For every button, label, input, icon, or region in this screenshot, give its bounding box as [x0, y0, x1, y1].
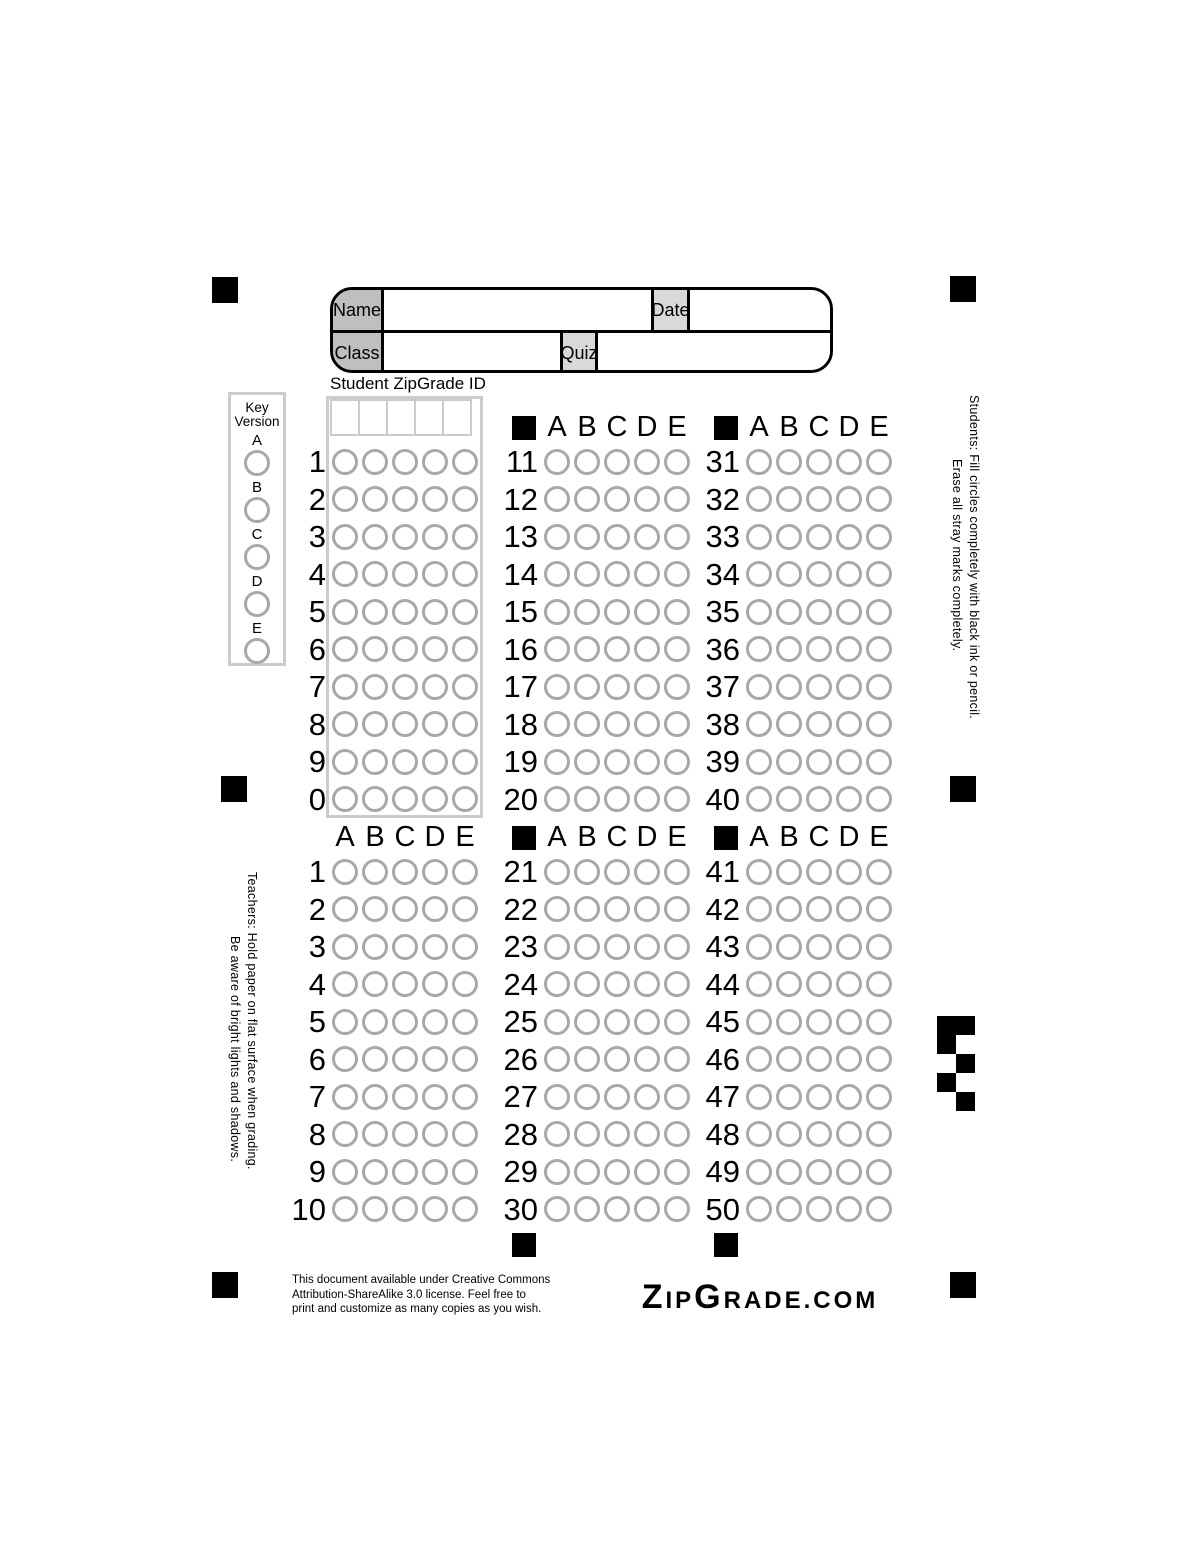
answer-bubble-q37-B[interactable]: [776, 674, 802, 700]
answer-bubble-q42-E[interactable]: [866, 896, 892, 922]
answer-bubble-q27-D[interactable]: [634, 1084, 660, 1110]
id-write-cell-5[interactable]: [442, 399, 472, 436]
answer-bubble-q13-D[interactable]: [634, 524, 660, 550]
answer-bubble-q50-E[interactable]: [866, 1196, 892, 1222]
answer-bubble-q5-D[interactable]: [422, 1009, 448, 1035]
answer-bubble-q26-B[interactable]: [574, 1046, 600, 1072]
answer-bubble-q31-C[interactable]: [806, 449, 832, 475]
answer-bubble-q6-E[interactable]: [452, 1046, 478, 1072]
answer-bubble-q40-E[interactable]: [866, 786, 892, 812]
answer-bubble-q50-A[interactable]: [746, 1196, 772, 1222]
answer-bubble-q36-C[interactable]: [806, 636, 832, 662]
id-bubble-digit1-col3[interactable]: [392, 449, 418, 475]
answer-bubble-q30-C[interactable]: [604, 1196, 630, 1222]
answer-bubble-q9-B[interactable]: [362, 1159, 388, 1185]
answer-bubble-q44-E[interactable]: [866, 971, 892, 997]
answer-bubble-q41-E[interactable]: [866, 859, 892, 885]
answer-bubble-q42-B[interactable]: [776, 896, 802, 922]
answer-bubble-q47-D[interactable]: [836, 1084, 862, 1110]
id-bubble-digit9-col3[interactable]: [392, 749, 418, 775]
answer-bubble-q47-A[interactable]: [746, 1084, 772, 1110]
id-bubble-digit9-col5[interactable]: [452, 749, 478, 775]
answer-bubble-q7-B[interactable]: [362, 1084, 388, 1110]
id-bubble-digit4-col1[interactable]: [332, 561, 358, 587]
answer-bubble-q36-A[interactable]: [746, 636, 772, 662]
answer-bubble-q33-D[interactable]: [836, 524, 862, 550]
answer-bubble-q45-E[interactable]: [866, 1009, 892, 1035]
answer-bubble-q20-A[interactable]: [544, 786, 570, 812]
answer-bubble-q40-C[interactable]: [806, 786, 832, 812]
answer-bubble-q44-A[interactable]: [746, 971, 772, 997]
answer-bubble-q35-C[interactable]: [806, 599, 832, 625]
answer-bubble-q18-D[interactable]: [634, 711, 660, 737]
id-bubble-digit5-col2[interactable]: [362, 599, 388, 625]
id-bubble-digit6-col5[interactable]: [452, 636, 478, 662]
id-bubble-digit7-col4[interactable]: [422, 674, 448, 700]
answer-bubble-q28-B[interactable]: [574, 1121, 600, 1147]
answer-bubble-q29-C[interactable]: [604, 1159, 630, 1185]
id-bubble-digit6-col4[interactable]: [422, 636, 448, 662]
answer-bubble-q7-A[interactable]: [332, 1084, 358, 1110]
answer-bubble-q3-B[interactable]: [362, 934, 388, 960]
answer-bubble-q25-D[interactable]: [634, 1009, 660, 1035]
answer-bubble-q23-A[interactable]: [544, 934, 570, 960]
answer-bubble-q11-D[interactable]: [634, 449, 660, 475]
answer-bubble-q1-B[interactable]: [362, 859, 388, 885]
answer-bubble-q13-C[interactable]: [604, 524, 630, 550]
answer-bubble-q38-C[interactable]: [806, 711, 832, 737]
answer-bubble-q16-B[interactable]: [574, 636, 600, 662]
id-bubble-digit2-col2[interactable]: [362, 486, 388, 512]
answer-bubble-q48-B[interactable]: [776, 1121, 802, 1147]
answer-bubble-q35-B[interactable]: [776, 599, 802, 625]
license-text: This document available under Creative C…: [292, 1273, 550, 1317]
id-bubble-digit9-col1[interactable]: [332, 749, 358, 775]
answer-bubble-q26-C[interactable]: [604, 1046, 630, 1072]
answer-bubble-q33-B[interactable]: [776, 524, 802, 550]
answer-bubble-q10-D[interactable]: [422, 1196, 448, 1222]
answer-bubble-q37-A[interactable]: [746, 674, 772, 700]
answer-bubble-q46-E[interactable]: [866, 1046, 892, 1072]
answer-bubble-q8-E[interactable]: [452, 1121, 478, 1147]
date-field[interactable]: [690, 290, 830, 330]
id-bubble-digit2-col1[interactable]: [332, 486, 358, 512]
answer-bubble-q31-D[interactable]: [836, 449, 862, 475]
answer-bubble-q32-B[interactable]: [776, 486, 802, 512]
quiz-field[interactable]: [598, 333, 830, 373]
answer-bubble-q21-D[interactable]: [634, 859, 660, 885]
id-write-cell-1[interactable]: [330, 399, 360, 436]
answer-bubble-q23-C[interactable]: [604, 934, 630, 960]
answer-bubble-q36-B[interactable]: [776, 636, 802, 662]
answer-bubble-q10-C[interactable]: [392, 1196, 418, 1222]
answer-bubble-q38-B[interactable]: [776, 711, 802, 737]
answer-bubble-q10-B[interactable]: [362, 1196, 388, 1222]
question-row-36: 36: [680, 631, 894, 669]
id-bubble-digit0-col4[interactable]: [422, 786, 448, 812]
answer-bubble-q31-B[interactable]: [776, 449, 802, 475]
answer-bubble-q4-B[interactable]: [362, 971, 388, 997]
answer-bubble-q46-C[interactable]: [806, 1046, 832, 1072]
id-bubble-digit8-col1[interactable]: [332, 711, 358, 737]
answer-bubble-q14-D[interactable]: [634, 561, 660, 587]
answer-bubble-q49-A[interactable]: [746, 1159, 772, 1185]
id-bubble-digit5-col4[interactable]: [422, 599, 448, 625]
answer-bubble-q26-A[interactable]: [544, 1046, 570, 1072]
answer-bubble-q2-D[interactable]: [422, 896, 448, 922]
answer-bubble-q5-C[interactable]: [392, 1009, 418, 1035]
answer-bubble-q22-A[interactable]: [544, 896, 570, 922]
answer-bubble-q25-B[interactable]: [574, 1009, 600, 1035]
answer-bubble-q4-C[interactable]: [392, 971, 418, 997]
answer-bubble-q47-E[interactable]: [866, 1084, 892, 1110]
answer-bubble-q10-A[interactable]: [332, 1196, 358, 1222]
answer-bubble-q19-C[interactable]: [604, 749, 630, 775]
answer-bubble-q38-D[interactable]: [836, 711, 862, 737]
answer-bubble-q20-B[interactable]: [574, 786, 600, 812]
answer-bubble-q14-B[interactable]: [574, 561, 600, 587]
answer-bubble-q45-A[interactable]: [746, 1009, 772, 1035]
answer-bubble-q47-C[interactable]: [806, 1084, 832, 1110]
answer-bubble-q45-D[interactable]: [836, 1009, 862, 1035]
answer-bubble-q37-D[interactable]: [836, 674, 862, 700]
answer-bubble-q8-B[interactable]: [362, 1121, 388, 1147]
answer-bubble-q30-B[interactable]: [574, 1196, 600, 1222]
id-bubble-digit0-col3[interactable]: [392, 786, 418, 812]
answer-bubble-q22-B[interactable]: [574, 896, 600, 922]
id-bubble-digit6-col2[interactable]: [362, 636, 388, 662]
answer-bubble-q12-A[interactable]: [544, 486, 570, 512]
answer-bubble-q32-D[interactable]: [836, 486, 862, 512]
answer-bubble-q42-D[interactable]: [836, 896, 862, 922]
answer-bubble-q48-C[interactable]: [806, 1121, 832, 1147]
id-write-cell-2[interactable]: [358, 399, 388, 436]
id-bubble-digit7-col1[interactable]: [332, 674, 358, 700]
answer-bubble-q49-C[interactable]: [806, 1159, 832, 1185]
answer-bubble-q17-B[interactable]: [574, 674, 600, 700]
id-bubble-digit8-col4[interactable]: [422, 711, 448, 737]
answer-bubble-q12-C[interactable]: [604, 486, 630, 512]
answer-bubble-q45-B[interactable]: [776, 1009, 802, 1035]
answer-bubble-q7-D[interactable]: [422, 1084, 448, 1110]
answer-bubble-q24-A[interactable]: [544, 971, 570, 997]
answer-bubble-q39-B[interactable]: [776, 749, 802, 775]
answer-bubble-q34-B[interactable]: [776, 561, 802, 587]
answer-bubble-q15-B[interactable]: [574, 599, 600, 625]
answer-bubble-q25-A[interactable]: [544, 1009, 570, 1035]
answer-bubble-q2-E[interactable]: [452, 896, 478, 922]
id-bubble-digit2-col4[interactable]: [422, 486, 448, 512]
answer-bubble-q40-B[interactable]: [776, 786, 802, 812]
answer-bubble-q43-D[interactable]: [836, 934, 862, 960]
id-bubble-digit6-col1[interactable]: [332, 636, 358, 662]
answer-bubble-q23-D[interactable]: [634, 934, 660, 960]
answer-bubble-q13-A[interactable]: [544, 524, 570, 550]
answer-bubble-q43-E[interactable]: [866, 934, 892, 960]
answer-bubble-q14-C[interactable]: [604, 561, 630, 587]
answer-bubble-q15-C[interactable]: [604, 599, 630, 625]
answer-bubble-q17-C[interactable]: [604, 674, 630, 700]
answer-bubble-q39-C[interactable]: [806, 749, 832, 775]
id-bubble-digit3-col1[interactable]: [332, 524, 358, 550]
answer-bubble-q20-C[interactable]: [604, 786, 630, 812]
id-bubble-digit4-col5[interactable]: [452, 561, 478, 587]
answer-bubble-q35-A[interactable]: [746, 599, 772, 625]
answer-bubble-q7-C[interactable]: [392, 1084, 418, 1110]
answer-bubble-q27-B[interactable]: [574, 1084, 600, 1110]
id-bubble-digit1-col1[interactable]: [332, 449, 358, 475]
id-bubble-digit5-col1[interactable]: [332, 599, 358, 625]
answer-bubble-q6-B[interactable]: [362, 1046, 388, 1072]
id-bubble-digit3-col3[interactable]: [392, 524, 418, 550]
id-bubble-digit1-col2[interactable]: [362, 449, 388, 475]
id-bubble-digit8-col3[interactable]: [392, 711, 418, 737]
answer-bubble-q29-A[interactable]: [544, 1159, 570, 1185]
answer-bubble-q16-C[interactable]: [604, 636, 630, 662]
answer-bubble-q46-B[interactable]: [776, 1046, 802, 1072]
id-bubble-digit2-col5[interactable]: [452, 486, 478, 512]
answer-bubble-q32-C[interactable]: [806, 486, 832, 512]
answer-bubble-q15-D[interactable]: [634, 599, 660, 625]
id-bubble-digit0-col2[interactable]: [362, 786, 388, 812]
answer-bubble-q28-A[interactable]: [544, 1121, 570, 1147]
answer-bubble-q33-C[interactable]: [806, 524, 832, 550]
answer-bubble-q32-E[interactable]: [866, 486, 892, 512]
answer-bubble-q34-C[interactable]: [806, 561, 832, 587]
id-write-cell-3[interactable]: [386, 399, 416, 436]
answer-bubble-q18-A[interactable]: [544, 711, 570, 737]
answer-bubble-q50-C[interactable]: [806, 1196, 832, 1222]
answer-bubble-q18-C[interactable]: [604, 711, 630, 737]
answer-bubble-q33-A[interactable]: [746, 524, 772, 550]
answer-bubble-q14-A[interactable]: [544, 561, 570, 587]
answer-bubble-q39-E[interactable]: [866, 749, 892, 775]
answer-bubble-q49-B[interactable]: [776, 1159, 802, 1185]
answer-bubble-q2-B[interactable]: [362, 896, 388, 922]
answer-bubble-q6-C[interactable]: [392, 1046, 418, 1072]
id-bubble-digit7-col3[interactable]: [392, 674, 418, 700]
answer-bubble-q41-C[interactable]: [806, 859, 832, 885]
answer-bubble-q40-A[interactable]: [746, 786, 772, 812]
answer-bubble-q43-B[interactable]: [776, 934, 802, 960]
answer-bubble-q39-D[interactable]: [836, 749, 862, 775]
answer-bubble-q48-E[interactable]: [866, 1121, 892, 1147]
answer-bubble-q29-B[interactable]: [574, 1159, 600, 1185]
answer-bubble-q11-A[interactable]: [544, 449, 570, 475]
answer-bubble-q42-A[interactable]: [746, 896, 772, 922]
key-version-bubble-E[interactable]: [244, 638, 270, 664]
answer-bubble-q1-A[interactable]: [332, 859, 358, 885]
id-bubble-digit4-col4[interactable]: [422, 561, 448, 587]
answer-bubble-q9-E[interactable]: [452, 1159, 478, 1185]
answer-bubble-q3-C[interactable]: [392, 934, 418, 960]
answer-bubble-q18-B[interactable]: [574, 711, 600, 737]
answer-bubble-q20-D[interactable]: [634, 786, 660, 812]
key-version-bubble-B[interactable]: [244, 497, 270, 523]
answer-bubble-q4-A[interactable]: [332, 971, 358, 997]
id-bubble-digit4-col2[interactable]: [362, 561, 388, 587]
answer-bubble-q39-A[interactable]: [746, 749, 772, 775]
answer-bubble-q2-A[interactable]: [332, 896, 358, 922]
id-bubble-digit0-col5[interactable]: [452, 786, 478, 812]
answer-bubble-q44-B[interactable]: [776, 971, 802, 997]
answer-bubble-q2-C[interactable]: [392, 896, 418, 922]
answer-bubble-q36-D[interactable]: [836, 636, 862, 662]
answer-bubble-q43-A[interactable]: [746, 934, 772, 960]
answer-bubble-q5-A[interactable]: [332, 1009, 358, 1035]
id-bubble-digit1-col4[interactable]: [422, 449, 448, 475]
answer-bubble-q35-E[interactable]: [866, 599, 892, 625]
id-bubble-digit7-col2[interactable]: [362, 674, 388, 700]
answer-bubble-q30-A[interactable]: [544, 1196, 570, 1222]
answer-bubble-q24-C[interactable]: [604, 971, 630, 997]
answer-bubble-q16-D[interactable]: [634, 636, 660, 662]
answer-bubble-q10-E[interactable]: [452, 1196, 478, 1222]
id-bubble-digit8-col5[interactable]: [452, 711, 478, 737]
key-version-bubble-C[interactable]: [244, 544, 270, 570]
key-version-bubble-D[interactable]: [244, 591, 270, 617]
name-field[interactable]: [384, 290, 651, 330]
answer-bubble-q34-E[interactable]: [866, 561, 892, 587]
id-bubble-digit8-col2[interactable]: [362, 711, 388, 737]
answer-bubble-q21-C[interactable]: [604, 859, 630, 885]
answer-bubble-q17-A[interactable]: [544, 674, 570, 700]
answer-bubble-q46-D[interactable]: [836, 1046, 862, 1072]
answer-bubble-q33-E[interactable]: [866, 524, 892, 550]
answer-bubble-q7-E[interactable]: [452, 1084, 478, 1110]
answer-bubble-q35-D[interactable]: [836, 599, 862, 625]
answer-bubble-q4-E[interactable]: [452, 971, 478, 997]
answer-bubble-q41-D[interactable]: [836, 859, 862, 885]
answer-bubble-q9-A[interactable]: [332, 1159, 358, 1185]
answer-bubble-q38-E[interactable]: [866, 711, 892, 737]
answer-bubble-q3-D[interactable]: [422, 934, 448, 960]
answer-bubble-q34-D[interactable]: [836, 561, 862, 587]
answer-bubble-q30-D[interactable]: [634, 1196, 660, 1222]
id-write-cell-4[interactable]: [414, 399, 444, 436]
id-bubble-digit0-col1[interactable]: [332, 786, 358, 812]
answer-bubble-q16-A[interactable]: [544, 636, 570, 662]
answer-bubble-q5-B[interactable]: [362, 1009, 388, 1035]
answer-bubble-q40-D[interactable]: [836, 786, 862, 812]
answer-bubble-q41-A[interactable]: [746, 859, 772, 885]
id-bubble-digit1-col5[interactable]: [452, 449, 478, 475]
answer-bubble-q44-D[interactable]: [836, 971, 862, 997]
answer-bubble-q1-D[interactable]: [422, 859, 448, 885]
answer-bubble-q11-C[interactable]: [604, 449, 630, 475]
answer-bubble-q17-D[interactable]: [634, 674, 660, 700]
answer-bubble-q31-E[interactable]: [866, 449, 892, 475]
answer-bubble-q38-A[interactable]: [746, 711, 772, 737]
answer-bubble-q28-D[interactable]: [634, 1121, 660, 1147]
answer-bubble-q50-D[interactable]: [836, 1196, 862, 1222]
answer-bubble-q8-D[interactable]: [422, 1121, 448, 1147]
key-version-bubble-A[interactable]: [244, 450, 270, 476]
answer-bubble-q22-D[interactable]: [634, 896, 660, 922]
answer-bubble-q43-C[interactable]: [806, 934, 832, 960]
answer-bubble-q26-D[interactable]: [634, 1046, 660, 1072]
answer-bubble-q31-A[interactable]: [746, 449, 772, 475]
answer-bubble-q41-B[interactable]: [776, 859, 802, 885]
answer-bubble-q22-C[interactable]: [604, 896, 630, 922]
id-bubble-digit5-col3[interactable]: [392, 599, 418, 625]
answer-bubble-q46-A[interactable]: [746, 1046, 772, 1072]
answer-bubble-q1-C[interactable]: [392, 859, 418, 885]
answer-bubble-q19-A[interactable]: [544, 749, 570, 775]
id-bubble-digit3-col5[interactable]: [452, 524, 478, 550]
answer-bubble-q32-A[interactable]: [746, 486, 772, 512]
answer-bubble-q36-E[interactable]: [866, 636, 892, 662]
registration-square-bottom-right: [950, 1272, 976, 1298]
id-bubble-digit2-col3[interactable]: [392, 486, 418, 512]
answer-bubble-q50-B[interactable]: [776, 1196, 802, 1222]
answer-bubble-q21-B[interactable]: [574, 859, 600, 885]
answer-bubble-q48-A[interactable]: [746, 1121, 772, 1147]
id-bubble-digit9-col2[interactable]: [362, 749, 388, 775]
answer-bubble-q48-D[interactable]: [836, 1121, 862, 1147]
answer-bubble-q11-B[interactable]: [574, 449, 600, 475]
answer-bubble-q24-D[interactable]: [634, 971, 660, 997]
answer-bubble-q44-C[interactable]: [806, 971, 832, 997]
answer-bubble-q8-C[interactable]: [392, 1121, 418, 1147]
id-bubble-digit7-col5[interactable]: [452, 674, 478, 700]
answer-bubble-q27-C[interactable]: [604, 1084, 630, 1110]
answer-bubble-q34-A[interactable]: [746, 561, 772, 587]
answer-bubble-q6-D[interactable]: [422, 1046, 448, 1072]
answer-bubble-q15-A[interactable]: [544, 599, 570, 625]
id-bubble-digit4-col3[interactable]: [392, 561, 418, 587]
answer-bubble-q3-E[interactable]: [452, 934, 478, 960]
answer-bubble-q49-E[interactable]: [866, 1159, 892, 1185]
answer-bubble-q49-D[interactable]: [836, 1159, 862, 1185]
answer-bubble-q29-D[interactable]: [634, 1159, 660, 1185]
answer-bubble-q28-C[interactable]: [604, 1121, 630, 1147]
answer-bubble-q19-D[interactable]: [634, 749, 660, 775]
id-bubble-digit3-col4[interactable]: [422, 524, 448, 550]
answer-bubble-q3-A[interactable]: [332, 934, 358, 960]
answer-bubble-q37-C[interactable]: [806, 674, 832, 700]
answer-bubble-q45-C[interactable]: [806, 1009, 832, 1035]
answer-bubble-q8-A[interactable]: [332, 1121, 358, 1147]
id-bubble-digit3-col2[interactable]: [362, 524, 388, 550]
answer-bubble-q24-B[interactable]: [574, 971, 600, 997]
id-bubble-digit5-col5[interactable]: [452, 599, 478, 625]
id-bubble-digit9-col4[interactable]: [422, 749, 448, 775]
key-version-options: ABCDE: [244, 429, 270, 664]
answer-bubble-q6-A[interactable]: [332, 1046, 358, 1072]
id-bubble-digit6-col3[interactable]: [392, 636, 418, 662]
answer-bubble-q27-A[interactable]: [544, 1084, 570, 1110]
answer-bubble-q9-C[interactable]: [392, 1159, 418, 1185]
answer-bubble-q12-D[interactable]: [634, 486, 660, 512]
answer-bubble-q25-C[interactable]: [604, 1009, 630, 1035]
answer-bubble-q12-B[interactable]: [574, 486, 600, 512]
answer-bubble-q5-E[interactable]: [452, 1009, 478, 1035]
question-row-41: 41: [680, 853, 894, 891]
answer-bubble-q23-B[interactable]: [574, 934, 600, 960]
answer-bubble-q19-B[interactable]: [574, 749, 600, 775]
answer-bubble-q9-D[interactable]: [422, 1159, 448, 1185]
logo-part: RADE: [724, 1287, 804, 1314]
answer-bubble-q4-D[interactable]: [422, 971, 448, 997]
answer-bubble-q13-B[interactable]: [574, 524, 600, 550]
answer-bubble-q21-A[interactable]: [544, 859, 570, 885]
answer-bubble-q37-E[interactable]: [866, 674, 892, 700]
answer-bubble-q42-C[interactable]: [806, 896, 832, 922]
class-field[interactable]: [384, 333, 560, 373]
answer-bubble-q47-B[interactable]: [776, 1084, 802, 1110]
answer-bubble-q1-E[interactable]: [452, 859, 478, 885]
